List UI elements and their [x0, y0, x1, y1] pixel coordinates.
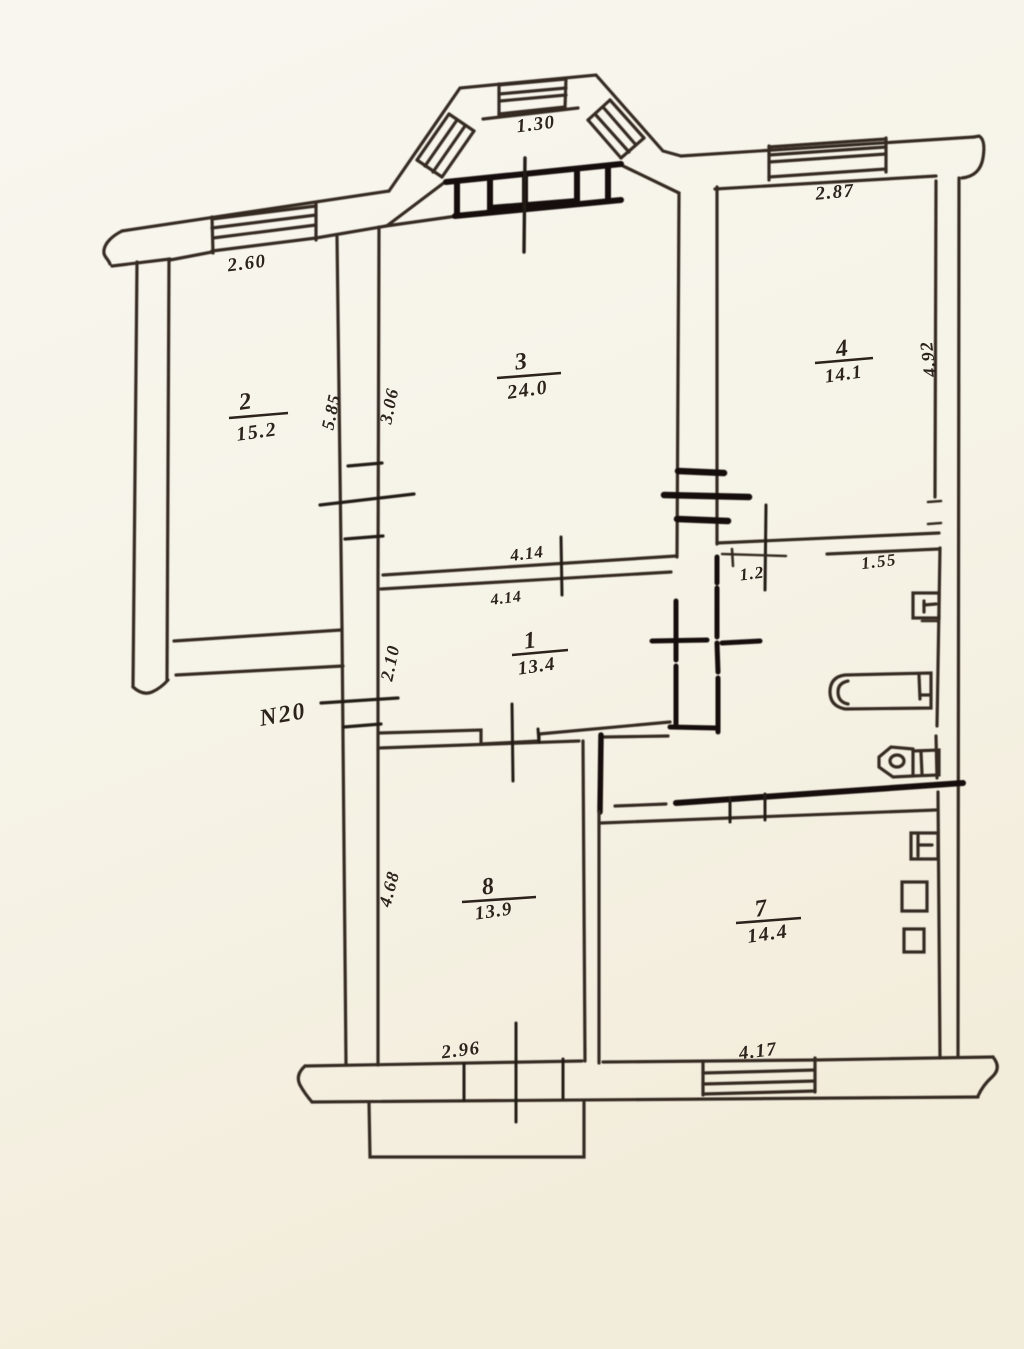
svg-text:2.87: 2.87 [814, 180, 856, 204]
svg-text:1.2: 1.2 [739, 563, 766, 585]
